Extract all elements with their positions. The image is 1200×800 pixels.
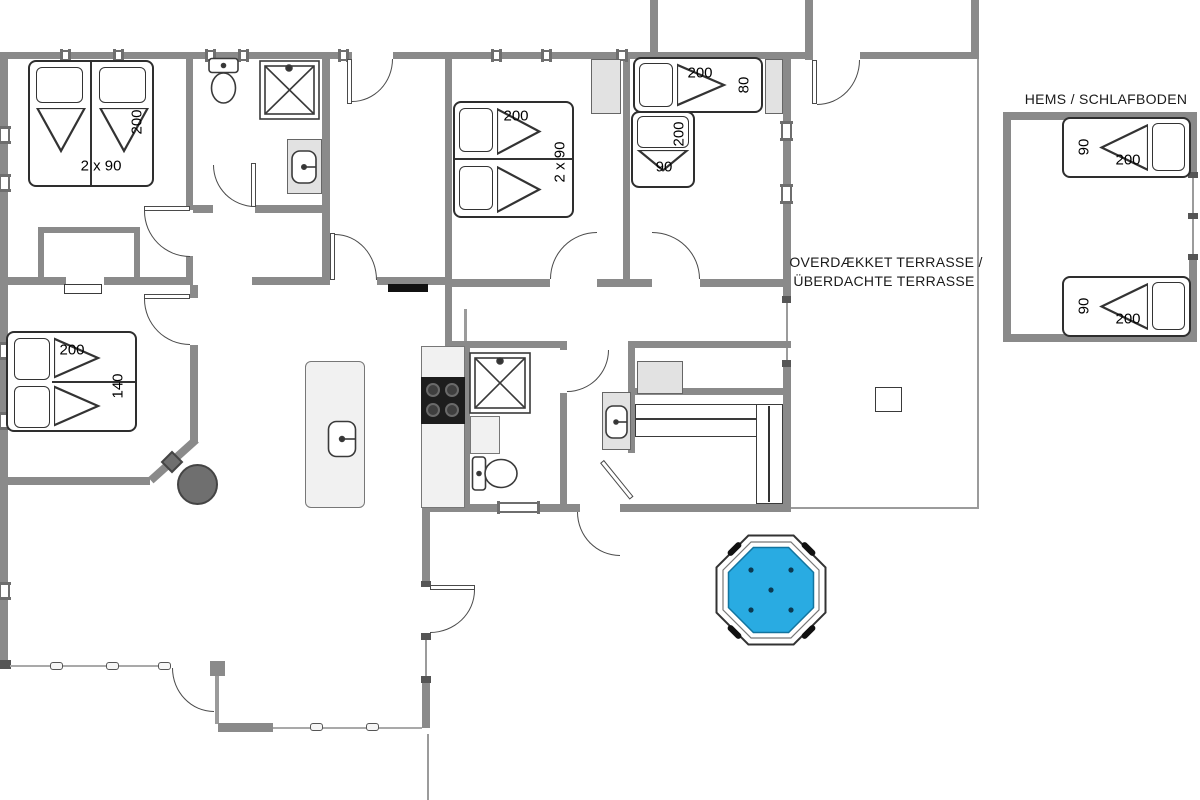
wall [623,59,630,279]
closet-wall [38,227,140,233]
glass-cap [782,296,791,303]
pillow [14,386,50,428]
closet-shelf [64,284,102,294]
glass-cap [782,360,791,367]
pillow [99,67,146,103]
door-arc [550,232,597,279]
pillow [36,67,83,103]
fence-column [210,661,225,676]
wall-bottom [540,504,580,512]
window [781,184,792,204]
door-arc [430,590,475,633]
wall [700,279,791,287]
door-arc [577,512,620,556]
fence [215,676,219,724]
terrace-table [875,387,902,412]
window [491,50,502,61]
shed-wall [650,0,658,52]
terrace-label-line2: ÜBERDACHTE TERRASSE [793,273,974,289]
bed-length-label: 200 [503,108,528,125]
floor-plan: 200 2 x 90 200 2 x 90 200 80 200 90 200 … [0,0,1200,800]
bed-width-label: 140 [110,373,127,398]
wall [0,277,66,285]
window [0,582,10,600]
cabinet [637,361,683,394]
wall [560,341,567,350]
wall [860,52,979,59]
wardrobe [591,59,621,114]
fence [273,727,422,729]
fence-post [158,662,171,670]
wall [560,393,567,504]
wall [0,477,150,485]
glass-cap [421,676,431,683]
gate-arc [172,668,214,712]
bed-width-label: 90 [1076,139,1093,156]
hot-tub-icon [711,529,832,652]
wall [252,277,330,285]
bed-length-label: 200 [1115,152,1140,169]
wall [190,345,198,442]
bed-width-label: 2 x 90 [81,158,122,175]
glass-section [425,640,427,676]
bed-width-label: 90 [1076,298,1093,315]
kitchen-counter [421,346,465,508]
fence-wall [218,723,273,732]
burner-icon [445,403,459,417]
door-arc [567,350,609,392]
sink-icon [605,405,628,439]
burner-icon [426,403,440,417]
bed-length-label: 200 [687,65,712,82]
pillow [459,166,493,210]
tv-icon [388,284,428,292]
cabinet [470,416,500,454]
sauna-bench [635,419,758,437]
bed-length-label: 200 [1115,311,1140,328]
terrace-roof-edge [791,507,979,509]
wall-bottom [620,504,791,512]
door-arc [352,59,393,102]
wall-cap [421,633,431,640]
fence-post [366,723,379,731]
wall-east [783,366,791,510]
burner-icon [445,383,459,397]
hems-title: HEMS / SCHLAFBODEN [1025,91,1188,107]
fence-post [106,662,119,670]
wall [445,279,550,287]
wall [322,59,330,283]
wall [422,504,430,581]
glass-section [786,300,788,366]
fence-post [50,662,63,670]
deck-edge [427,734,429,800]
pillow [459,108,493,152]
toilet-icon [471,454,519,493]
closet-wall [134,227,140,277]
wall [445,59,452,348]
window [497,502,540,513]
window [781,121,792,141]
wall [193,205,213,213]
window [541,50,552,61]
toilet-icon [207,57,240,105]
door-arc [652,232,700,279]
bed-width-label: 90 [656,159,673,176]
door-arc [144,299,190,345]
wood-stove-icon [177,464,218,505]
door-arc [213,165,255,207]
door-arc [144,211,190,257]
sauna-bench [756,404,783,504]
sauna-bench-line [768,406,770,502]
wall [186,59,193,210]
wall [190,285,198,298]
bed-width-label: 80 [736,77,753,94]
shed-wall [805,0,813,60]
door-leaf [600,460,633,500]
sink-icon [327,420,357,458]
sink-icon [291,150,317,184]
bed-length-label: 200 [671,121,688,146]
wall [255,205,330,213]
wall [597,279,652,287]
burner-icon [426,383,440,397]
closet-wall [38,227,44,277]
shower-icon [259,60,320,120]
glass-cap [1188,213,1198,219]
wall [422,683,430,728]
wall [628,341,791,348]
terrace-roof-edge [977,59,979,509]
window [0,174,10,192]
window [0,126,10,144]
pillow [14,338,50,380]
door-arc [335,234,377,280]
half-wall [464,309,467,341]
fence [10,665,170,667]
bed-length-label: 200 [129,109,146,134]
shed-wall [971,0,979,59]
bed-length-label: 200 [59,342,84,359]
pillow [1152,123,1185,171]
bed-width-label: 2 x 90 [552,142,569,183]
door-arc [817,60,860,105]
wall [104,277,190,285]
glass-cap [1188,254,1198,260]
pillow [639,63,673,107]
fence-post [310,723,323,731]
hems-wall [1003,112,1011,342]
terrace-label-line1: OVERDÆKKET TERRASSE / [789,254,982,270]
pillow [1152,282,1185,330]
wardrobe [765,59,783,114]
shower-icon [469,352,531,414]
wall [0,52,352,59]
